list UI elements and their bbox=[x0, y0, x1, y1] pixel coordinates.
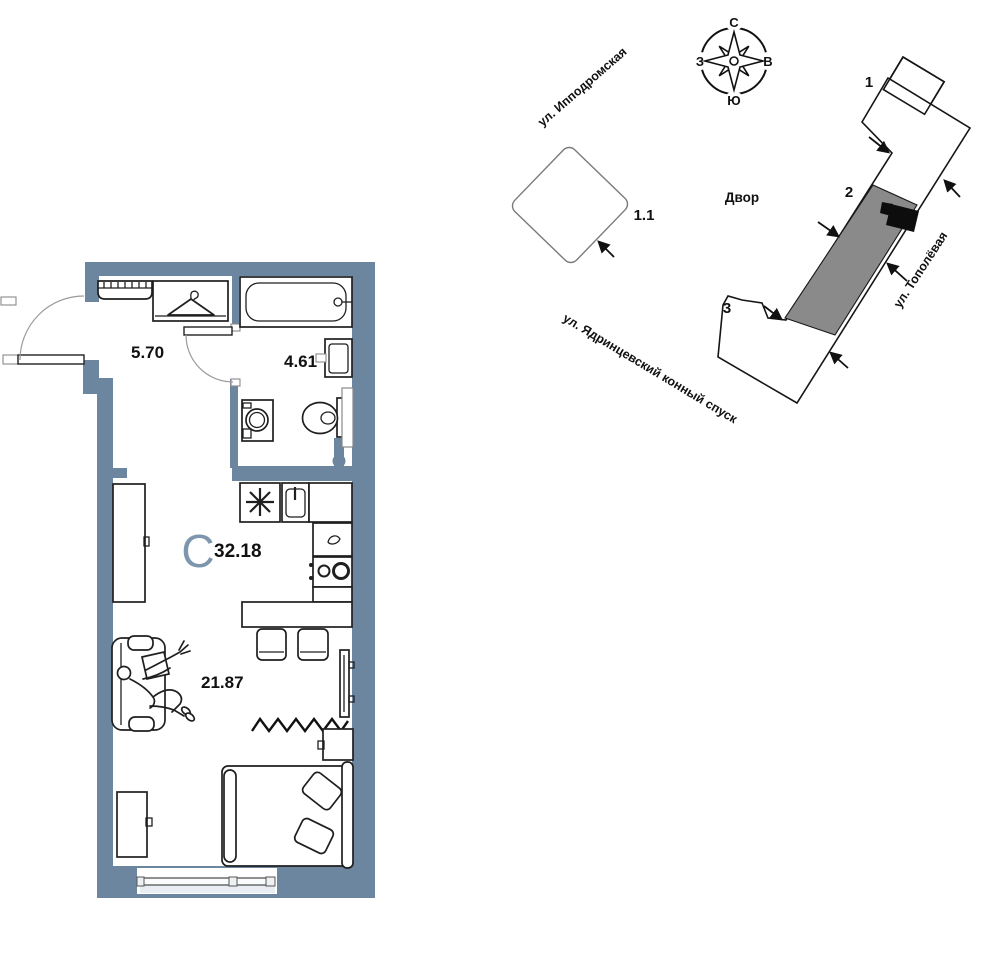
courtyard-label: Двор bbox=[725, 190, 759, 205]
tv bbox=[340, 650, 354, 717]
entrance-door bbox=[1, 296, 84, 364]
compass-rose-icon: С Ю З В bbox=[691, 13, 777, 109]
area-total-label: 32.18 bbox=[214, 541, 262, 562]
kitchen-sink bbox=[282, 483, 309, 522]
floorplan-canvas: 1.1 1 2 3 ул. Ипподромская ул. bbox=[0, 0, 987, 960]
bathroom-sink bbox=[316, 339, 352, 377]
floor-plan: С 32.18 5.70 4.61 21.87 bbox=[1, 262, 375, 898]
compass-west: З bbox=[696, 54, 704, 69]
area-hall-label: 5.70 bbox=[131, 343, 164, 362]
stove bbox=[309, 557, 352, 587]
kitchen-counter bbox=[309, 483, 352, 522]
north-letter: С bbox=[181, 525, 214, 577]
stool bbox=[298, 629, 328, 660]
floorplan-page: 1.1 1 2 3 ул. Ипподромская ул. bbox=[0, 0, 987, 960]
section-number-3: 3 bbox=[723, 300, 731, 317]
nightstand bbox=[318, 729, 353, 760]
bar-counter bbox=[242, 602, 352, 627]
block-label: 1.1 bbox=[634, 207, 655, 224]
toilet bbox=[303, 398, 347, 437]
site-map: 1.1 1 2 3 ул. Ипподромская ул. bbox=[509, 13, 970, 427]
entrance-arrow bbox=[945, 181, 960, 197]
kitchen-cabinet bbox=[313, 523, 352, 556]
cabinet bbox=[117, 792, 152, 857]
street-label-topolyovaya: ул. Тополёвая bbox=[891, 229, 951, 310]
section-number-1: 1 bbox=[865, 74, 873, 91]
shoe-rack bbox=[98, 281, 152, 299]
bathtub bbox=[240, 277, 352, 327]
bathroom-door bbox=[184, 324, 240, 386]
entrance-arrow bbox=[599, 242, 614, 257]
tall-wardrobe bbox=[113, 484, 149, 602]
street-label-ippodromskaya: ул. Ипподромская bbox=[535, 45, 629, 130]
window bbox=[137, 868, 277, 894]
entrance-arrow bbox=[888, 264, 907, 281]
wardrobe bbox=[153, 281, 228, 321]
area-room-label: 21.87 bbox=[201, 673, 244, 692]
block-1-1: 1.1 bbox=[509, 144, 654, 266]
section-number-2: 2 bbox=[845, 184, 853, 201]
compass-east: В bbox=[763, 54, 772, 69]
stool bbox=[257, 629, 286, 660]
building-outline: 1 2 3 bbox=[718, 57, 970, 403]
entrance-arrow bbox=[818, 222, 838, 236]
plumbing-shaft bbox=[342, 388, 353, 447]
street-label-yadrintsevsky: ул. Ядринцевский конный спуск bbox=[561, 311, 741, 427]
compass-south: Ю bbox=[727, 93, 740, 108]
snowflake-icon bbox=[246, 488, 274, 516]
washing-machine bbox=[242, 400, 273, 441]
kitchen-counter-low bbox=[313, 587, 352, 602]
compass-north: С bbox=[729, 15, 739, 30]
fridge bbox=[240, 483, 280, 522]
area-bathroom-label: 4.61 bbox=[284, 352, 317, 371]
bed bbox=[222, 762, 353, 868]
entrance-arrow bbox=[831, 353, 848, 368]
